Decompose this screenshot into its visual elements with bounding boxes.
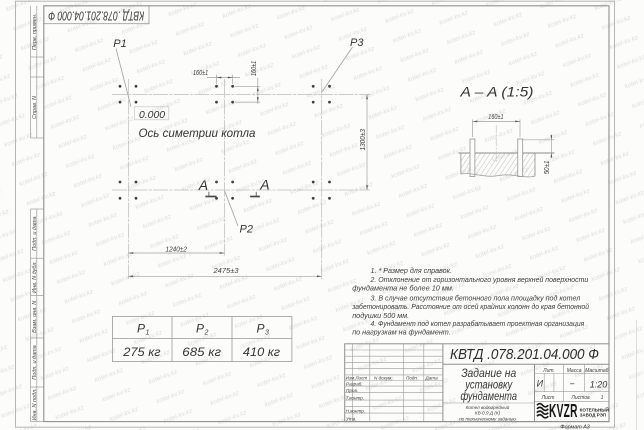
svg-text:3: 3 — [265, 330, 269, 337]
svg-text:P2: P2 — [240, 224, 253, 236]
svg-text:Т.контр.: Т.контр. — [346, 396, 365, 401]
svg-text:1: 1 — [601, 395, 604, 401]
svg-text:установку: установку — [464, 380, 513, 392]
svg-text:КВТД .078.201.04.000 Ф: КВТД .078.201.04.000 Ф — [48, 9, 144, 24]
svg-text:И: И — [537, 379, 544, 389]
svg-text:KVZR: KVZR — [549, 401, 578, 422]
svg-text:–: – — [569, 379, 575, 388]
svg-text:2: 2 — [204, 330, 209, 337]
svg-text:забетонировать. Расстояние от: забетонировать. Расстояние от осей крайн… — [351, 302, 589, 311]
svg-text:Масса: Масса — [567, 368, 582, 374]
svg-text:A: A — [259, 177, 269, 193]
svg-text:Задание на: Задание на — [461, 368, 516, 380]
svg-text:P: P — [196, 322, 204, 336]
svg-text:Дата: Дата — [425, 376, 439, 381]
svg-text:ЗАВОД РЭП: ЗАВОД РЭП — [580, 412, 607, 417]
svg-text:N докум.: N докум. — [374, 376, 393, 381]
svg-text:1:20: 1:20 — [590, 379, 608, 389]
svg-text:1240±2: 1240±2 — [166, 246, 188, 253]
svg-text:Подп.: Подп. — [406, 376, 418, 381]
svg-text:КВТД .078.201.04.000 Ф: КВТД .078.201.04.000 Ф — [450, 346, 599, 363]
svg-text:Разраб.: Разраб. — [346, 381, 363, 386]
svg-text:Справ. N: Справ. N — [32, 96, 38, 119]
svg-text:Инв. N дубл.: Инв. N дубл. — [32, 261, 38, 293]
svg-text:160±1: 160±1 — [251, 61, 258, 76]
svg-text:160±1: 160±1 — [488, 114, 503, 121]
svg-text:Утв.: Утв. — [346, 417, 356, 422]
svg-text:Масштаб: Масштаб — [585, 368, 609, 374]
svg-text:КВ-0,9 Д (К): КВ-0,9 Д (К) — [475, 411, 501, 416]
svg-text:фундамента не более 10 мм.: фундамента не более 10 мм. — [352, 283, 454, 292]
svg-text:1. * Размер для справок.: 1. * Размер для справок. — [371, 266, 453, 275]
svg-text:50±1: 50±1 — [544, 160, 551, 174]
svg-text:Ось симетрии котла: Ось симетрии котла — [139, 126, 256, 140]
svg-text:фундамента: фундамента — [460, 391, 517, 403]
svg-text:Подп. и дата: Подп. и дата — [32, 216, 38, 250]
svg-text:1300±3: 1300±3 — [360, 129, 367, 151]
svg-text:P1: P1 — [113, 38, 126, 50]
svg-text:Подп. и дата: Подп. и дата — [32, 345, 38, 379]
svg-text:275 кг: 275 кг — [122, 345, 160, 359]
svg-text:Формат А3: Формат А3 — [560, 425, 590, 430]
svg-text:P: P — [257, 322, 265, 336]
svg-text:Взам. инв. N: Взам. инв. N — [32, 301, 38, 333]
svg-text:Пров.: Пров. — [346, 388, 358, 393]
svg-text:P: P — [137, 322, 145, 336]
svg-text:Н.контр.: Н.контр. — [346, 408, 365, 413]
svg-text:685 кг: 685 кг — [182, 345, 221, 359]
svg-text:Лит.: Лит. — [542, 368, 555, 374]
svg-text:A – A (1:5): A – A (1:5) — [459, 84, 533, 100]
svg-text:1: 1 — [146, 330, 150, 337]
svg-text:по нагрузкам на фундамент.: по нагрузкам на фундамент. — [352, 327, 451, 336]
svg-text:160±1: 160±1 — [193, 70, 208, 77]
svg-text:410 кг: 410 кг — [243, 345, 280, 359]
svg-text:по техническому заданию: по техническому заданию — [459, 416, 516, 421]
svg-text:Инв. N подл.: Инв. N подл. — [32, 388, 38, 420]
svg-text:A: A — [198, 177, 208, 193]
svg-text:Перв. примен.: Перв. примен. — [32, 14, 38, 51]
svg-text:Котел водогрейный: Котел водогрейный — [466, 404, 510, 410]
svg-text:2475±3: 2475±3 — [212, 268, 238, 275]
svg-text:Изм.Лист: Изм.Лист — [346, 376, 368, 381]
svg-text:0.000: 0.000 — [139, 109, 165, 121]
